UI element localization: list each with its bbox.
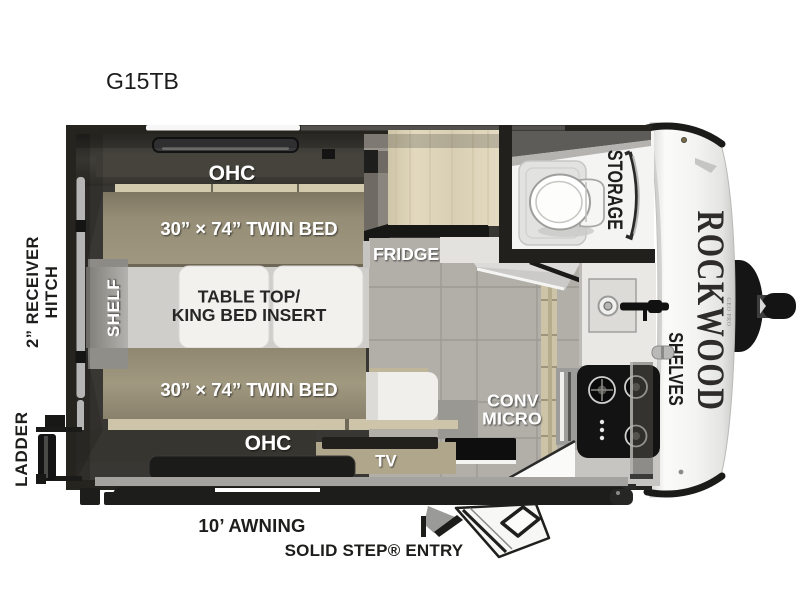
svg-text:HITCH: HITCH bbox=[43, 266, 61, 319]
svg-text:G15TB: G15TB bbox=[106, 68, 179, 94]
svg-text:STORAGE: STORAGE bbox=[604, 150, 628, 230]
svg-text:TV: TV bbox=[375, 453, 397, 471]
svg-text:SOLID STEP® ENTRY: SOLID STEP® ENTRY bbox=[285, 541, 464, 560]
svg-text:GEO PRO: GEO PRO bbox=[725, 297, 731, 326]
svg-text:KING BED INSERT: KING BED INSERT bbox=[172, 305, 327, 325]
svg-text:OHC: OHC bbox=[209, 162, 256, 185]
svg-text:30” × 74” TWIN BED: 30” × 74” TWIN BED bbox=[160, 379, 337, 400]
svg-text:2” RECEIVER: 2” RECEIVER bbox=[24, 236, 42, 348]
svg-text:CONV: CONV bbox=[487, 391, 539, 411]
svg-text:SHELVES: SHELVES bbox=[665, 332, 687, 406]
svg-text:10’ AWNING: 10’ AWNING bbox=[198, 515, 305, 536]
svg-text:LADDER: LADDER bbox=[12, 411, 31, 487]
svg-text:MICRO: MICRO bbox=[482, 409, 542, 429]
svg-text:OHC: OHC bbox=[245, 432, 292, 455]
svg-text:30” × 74” TWIN BED: 30” × 74” TWIN BED bbox=[160, 218, 337, 239]
svg-text:SHELF: SHELF bbox=[104, 279, 123, 337]
svg-text:FRIDGE: FRIDGE bbox=[373, 244, 439, 264]
svg-text:TABLE TOP/: TABLE TOP/ bbox=[198, 287, 301, 307]
